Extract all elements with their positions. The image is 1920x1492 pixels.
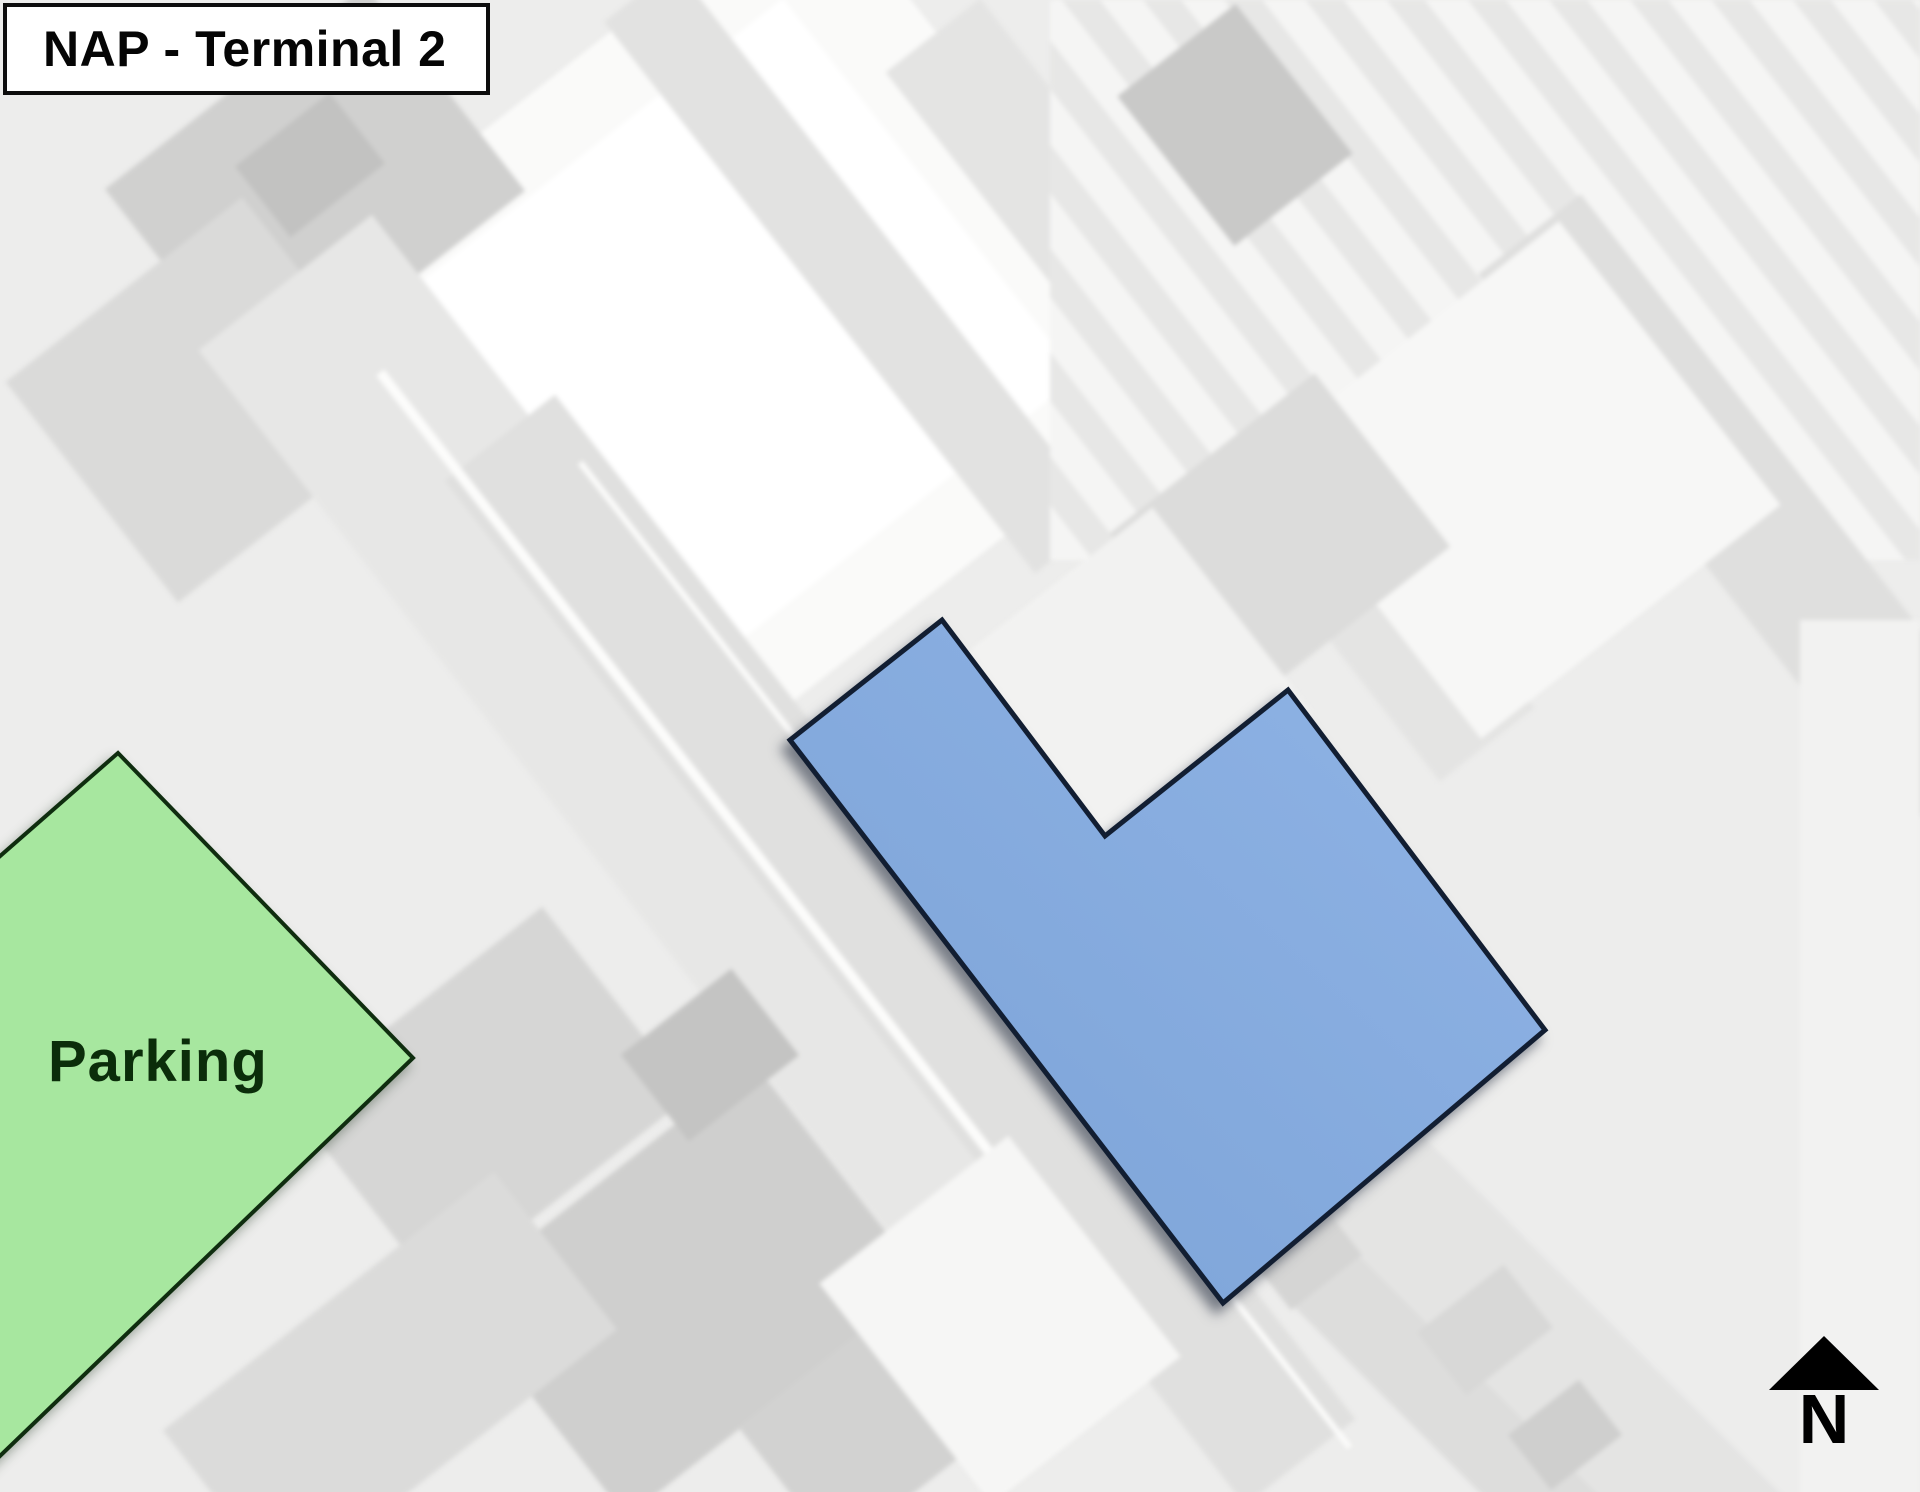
- parking-label: Parking: [48, 1028, 268, 1095]
- airport-map-canvas: Parking NAP - Terminal 2 N: [0, 0, 1920, 1492]
- parking-area-polygon[interactable]: [0, 753, 413, 1480]
- map-title-box: NAP - Terminal 2: [3, 3, 490, 95]
- terminal-2-building-polygon[interactable]: [790, 620, 1545, 1303]
- north-indicator: N: [1768, 1336, 1880, 1450]
- map-title: NAP - Terminal 2: [43, 20, 446, 78]
- north-label: N: [1768, 1388, 1880, 1450]
- map-overlay: [0, 0, 1920, 1492]
